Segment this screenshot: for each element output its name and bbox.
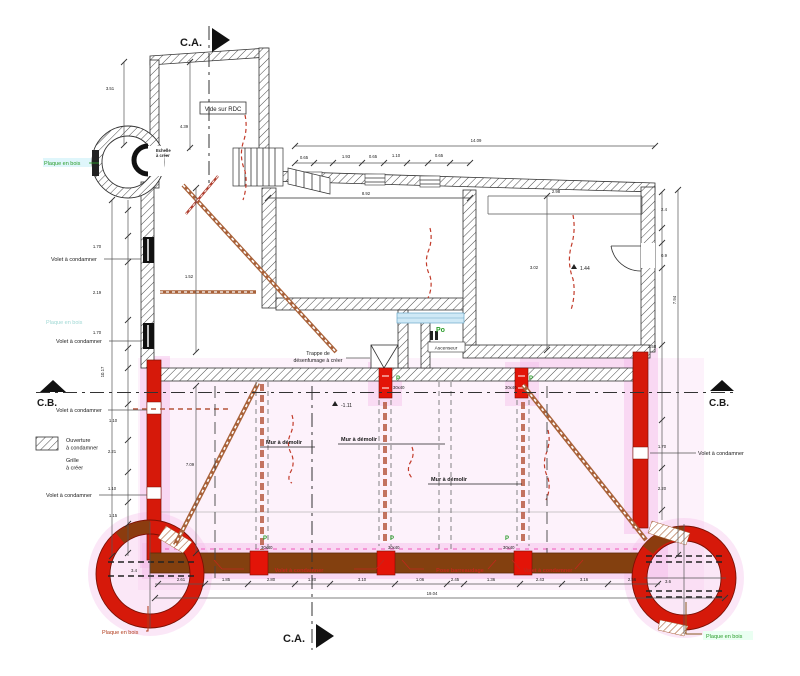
post-bottom2-size: 30x40 bbox=[388, 545, 400, 550]
dimension-value: 1.85 bbox=[222, 577, 231, 582]
level-marker-1-value: -1.11 bbox=[341, 403, 352, 409]
dimension-value: 0.9 bbox=[661, 253, 668, 258]
legend-ouverture-line1: Ouverture bbox=[66, 438, 90, 444]
ascenseur-label: Ascenseur bbox=[435, 346, 458, 352]
mur-demolir-2-label: Mur à démolir bbox=[341, 437, 378, 443]
dimension-value: 2.19 bbox=[93, 290, 102, 295]
post-top2-p: P bbox=[529, 376, 533, 382]
volet-condamner-left4-label: Volet à condamner bbox=[46, 493, 92, 499]
dimension-value: 0.65 bbox=[435, 153, 444, 158]
dimension-value: 3.02 bbox=[530, 265, 539, 270]
section-arrow-cb-right bbox=[710, 380, 734, 391]
post-bottom3-size: 30x40 bbox=[503, 545, 515, 550]
dimension-value: 1.10 bbox=[109, 418, 118, 423]
volet-condamner-bottom1-label: Volet à condamner bbox=[275, 568, 325, 574]
section-arrow-cb-left bbox=[40, 380, 66, 392]
po-label: Po bbox=[436, 327, 445, 334]
section-arrow-ca-top bbox=[212, 28, 230, 52]
floor-plan-drawing: C.A.C.A.C.B.C.B.Vide sur RDCEchelleà cré… bbox=[0, 0, 800, 676]
post-top1-p: P bbox=[396, 376, 400, 382]
dimension-value: 1.36 bbox=[487, 577, 496, 582]
post-bottom2-p: P bbox=[390, 536, 394, 542]
dimension-value: 14.09 bbox=[471, 138, 482, 143]
door-gap-right bbox=[641, 243, 655, 268]
dimension-value: 3.16 bbox=[580, 577, 589, 582]
dimension-value: 19.04 bbox=[427, 591, 438, 596]
legend-grille-line1: Grille bbox=[66, 458, 79, 464]
dimension-value: 3.51 bbox=[106, 86, 115, 91]
brace-upper-room bbox=[183, 185, 336, 352]
mur-demolir-1-label: Mur à démolir bbox=[266, 440, 303, 446]
post-bottom1-p: P bbox=[263, 536, 267, 542]
dimension-value: 2.20 bbox=[658, 486, 667, 491]
trappe-label-line2: désenfumage à créer bbox=[293, 358, 342, 364]
floor-plan-page: C.A.C.A.C.B.C.B.Vide sur RDCEchelleà cré… bbox=[0, 0, 800, 676]
legend-grille-line2: à créer bbox=[66, 466, 83, 472]
mur-demolir-3-label: Mur à démolir bbox=[431, 477, 468, 483]
volet-condamner-bottom2-label: Volet à condamner bbox=[524, 568, 574, 574]
dimension-value: 1.20 bbox=[308, 577, 317, 582]
section-cb-right-label: C.B. bbox=[709, 398, 729, 409]
dimension-value: 1.70 bbox=[93, 244, 102, 249]
post-bottom-1 bbox=[250, 551, 268, 575]
level-marker-2-value: 1.44 bbox=[580, 266, 590, 272]
dimension-value: 2.80 bbox=[267, 577, 276, 582]
dimension-value: 1.06 bbox=[416, 577, 425, 582]
dimension-value: 0.65 bbox=[369, 154, 378, 159]
vide-sur-rdc-label: Vide sur RDC bbox=[205, 107, 242, 113]
legend-ouverture-swatch bbox=[36, 437, 58, 450]
dimension-value: 3.6 bbox=[665, 579, 672, 584]
wall-interior-v3 bbox=[463, 190, 476, 345]
section-cb-left-label: C.B. bbox=[37, 398, 57, 409]
post-bottom1-size: 30x40 bbox=[261, 545, 273, 550]
volet-condamner-left1-label: Volet à condamner bbox=[51, 257, 97, 263]
plaque-en-bois-top-label: Plaque en bois bbox=[44, 161, 81, 167]
dimension-value: 1.93 bbox=[342, 154, 351, 159]
dimension-value: 1.70 bbox=[93, 330, 102, 335]
wall-interior-v1 bbox=[262, 188, 276, 308]
door-arc-right bbox=[611, 246, 641, 271]
post-top-2 bbox=[515, 368, 528, 398]
dimension-value: 2.43 bbox=[536, 577, 545, 582]
section-arrow-ca-bottom bbox=[316, 624, 334, 648]
post-top-1 bbox=[379, 368, 392, 398]
dimension-value: 1.70 bbox=[658, 444, 667, 449]
dimension-value: 7.94 bbox=[672, 295, 677, 304]
dimension-value: 3.4 bbox=[131, 568, 138, 573]
volet-condamner-right-label: Volet à condamner bbox=[698, 451, 744, 457]
dimension-value: 1.15 bbox=[109, 513, 118, 518]
red-wall-right bbox=[633, 352, 648, 528]
dimension-value: 3.10 bbox=[358, 577, 367, 582]
volet-condamner-left2-label: Volet à condamner bbox=[56, 339, 102, 345]
post-bottom-2 bbox=[377, 551, 395, 575]
section-ca-bottom-label: C.A. bbox=[283, 633, 305, 645]
dimension-value: 1.10 bbox=[108, 486, 117, 491]
dimension-value: 7.09 bbox=[186, 462, 195, 467]
staircase bbox=[233, 148, 330, 194]
dimension-value: 2.21 bbox=[108, 449, 117, 454]
legend-ouverture-line2: à condamner bbox=[66, 446, 98, 452]
dimension-value: 2.98 bbox=[552, 189, 561, 194]
pose-barreaudage-label: Pose barreaudage bbox=[436, 568, 484, 574]
dimension-value: 4.39 bbox=[180, 124, 189, 129]
dimension-value: 1.52 bbox=[185, 274, 194, 279]
dimension-value: 2.56 bbox=[628, 577, 637, 582]
dimension-value: 0.65 bbox=[300, 155, 309, 160]
level-marker-2 bbox=[571, 264, 577, 269]
walls-layer bbox=[92, 48, 655, 381]
post-top2-size: 30x40 bbox=[505, 385, 517, 390]
turret-spiral-stair bbox=[134, 146, 148, 174]
plaque-en-bois-faint-label: Plaque en bois bbox=[46, 320, 83, 326]
wall-rightroom-bottom bbox=[463, 345, 650, 358]
volet-condamner-left3-label: Volet à condamner bbox=[56, 408, 102, 414]
dimension-value: 8.92 bbox=[362, 191, 371, 196]
dimension-value: 10.17 bbox=[100, 366, 105, 377]
dimension-value: 2.58 bbox=[648, 344, 657, 349]
wall-interior-h1 bbox=[276, 298, 471, 310]
dimension-value: 1.10 bbox=[392, 153, 401, 158]
post-bottom3-p: P bbox=[505, 536, 509, 542]
post-top1-size: 30x40 bbox=[393, 385, 405, 390]
section-ca-top-label: C.A. bbox=[180, 37, 202, 49]
wall-right bbox=[641, 187, 655, 352]
plaque-en-bois-bottom-right-label: Plaque en bois bbox=[706, 634, 743, 640]
trappe-desenfumage-symbol bbox=[371, 345, 398, 368]
dimension-value: 2.61 bbox=[177, 577, 186, 582]
dimension-value: 2.4 bbox=[661, 207, 668, 212]
plaque-en-bois-bottom-left-label: Plaque en bois bbox=[102, 630, 139, 636]
dimension-value: 2.45 bbox=[451, 577, 460, 582]
turret-note-line2: à créer bbox=[156, 153, 170, 158]
trappe-label-line1: Trappe de bbox=[306, 351, 330, 357]
